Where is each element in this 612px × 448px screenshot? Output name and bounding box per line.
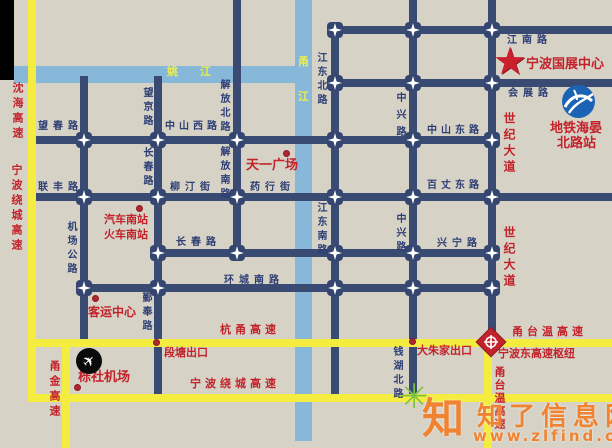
label-jiefang-north-rd: 解放北路 bbox=[218, 79, 228, 135]
label-zhongshan-east-rd: 中山东路 bbox=[427, 126, 483, 136]
intersection-star-icon bbox=[327, 189, 343, 205]
yao-river bbox=[14, 66, 312, 83]
road-zhongshan bbox=[32, 136, 496, 144]
label-metro-station-line1: 地铁海晏 bbox=[550, 122, 602, 135]
marker-dot-dazhujia-exit bbox=[409, 338, 416, 345]
label-wangchun-rd: 望春路 bbox=[38, 122, 83, 132]
yong-river-label-top: 甬 bbox=[298, 56, 309, 67]
label-zhongxing-rd-north: 中兴路 bbox=[394, 92, 404, 143]
intersection-star-icon bbox=[405, 22, 421, 38]
label-zhongshan-west-rd: 中山西路 bbox=[165, 122, 221, 132]
marker-dot-tianyi-square bbox=[283, 150, 290, 157]
label-wangjing-rd: 望京路 bbox=[141, 87, 151, 129]
label-shiji-avenue-north: 世纪大道 bbox=[503, 112, 515, 176]
black-edge bbox=[0, 0, 14, 80]
label-jiangdong-north-rd: 江东北路 bbox=[315, 52, 325, 108]
label-changchun-rd-h: 长春路 bbox=[176, 238, 221, 248]
label-dazhujia-exit: 大朱家出口 bbox=[417, 345, 472, 356]
intersection-star-icon bbox=[484, 132, 500, 148]
intersection-star-icon bbox=[150, 189, 166, 205]
intersection-star-icon bbox=[484, 22, 500, 38]
intersection-star-icon bbox=[327, 75, 343, 91]
intersection-star-icon bbox=[405, 132, 421, 148]
intersection-star-icon bbox=[405, 75, 421, 91]
label-changchun-rd-v: 长春路 bbox=[141, 147, 151, 189]
label-shiji-avenue-south: 世纪大道 bbox=[503, 226, 515, 290]
road-huancheng-south bbox=[80, 284, 496, 292]
label-south-train-station: 火车南站 bbox=[104, 229, 148, 240]
road-liuting-yaohang-baizhang bbox=[32, 193, 612, 201]
label-shenhai-expwy: 沈海高速 bbox=[12, 82, 23, 142]
label-zhongxing-rd-south: 中兴路 bbox=[394, 213, 404, 255]
intersection-star-icon bbox=[327, 245, 343, 261]
intersection-star-icon bbox=[484, 189, 500, 205]
yao-river-label: 姚江 bbox=[167, 66, 233, 77]
marker-dot-lishe-airport bbox=[74, 384, 81, 391]
intersection-star-icon bbox=[484, 280, 500, 296]
label-huizhan-rd: 会展路 bbox=[508, 89, 553, 99]
expwy-yongjin bbox=[62, 343, 70, 448]
label-south-bus-station: 汽车南站 bbox=[104, 214, 148, 225]
road-yinfeng bbox=[154, 76, 162, 396]
intersection-star-icon bbox=[229, 245, 245, 261]
intersection-star-icon bbox=[327, 22, 343, 38]
marker-dot-south-station bbox=[136, 205, 143, 212]
road-jichang-highway bbox=[80, 76, 88, 343]
label-metro-station-line2: 北路站 bbox=[557, 137, 596, 150]
intersection-star-icon bbox=[405, 245, 421, 261]
intersection-star-icon bbox=[76, 280, 92, 296]
intersection-star-icon bbox=[229, 132, 245, 148]
label-jiefang-south-rd: 解放南路 bbox=[218, 146, 228, 202]
road-jiefang bbox=[233, 0, 241, 257]
label-yaohang-st: 药行街 bbox=[250, 183, 295, 193]
label-raocheng-expwy-south: 宁波绕城高速 bbox=[190, 378, 280, 389]
intersection-star-icon bbox=[229, 189, 245, 205]
watermark-logo-char: 知 bbox=[422, 398, 464, 440]
road-jiangnan bbox=[331, 26, 612, 34]
label-passenger-center: 客运中心 bbox=[88, 306, 136, 318]
intersection-star-icon bbox=[327, 280, 343, 296]
label-huancheng-south-rd: 环城南路 bbox=[224, 276, 284, 286]
intersection-star-icon bbox=[405, 189, 421, 205]
label-expo-center: 宁波国展中心 bbox=[526, 58, 604, 71]
marker-dot-passenger-center bbox=[92, 295, 99, 302]
intersection-star-icon bbox=[150, 245, 166, 261]
intersection-star-icon bbox=[484, 245, 500, 261]
intersection-star-icon bbox=[405, 280, 421, 296]
intersection-star-icon bbox=[327, 132, 343, 148]
intersection-star-icon bbox=[150, 280, 166, 296]
label-jiangdong-south-rd: 江东南路 bbox=[315, 202, 325, 258]
expo-center-star-icon: ★ bbox=[493, 42, 527, 80]
label-baizhang-east-rd: 百丈东路 bbox=[427, 181, 483, 191]
expwy-hangyong bbox=[28, 339, 612, 347]
expwy-raocheng-south bbox=[28, 394, 612, 402]
intersection-star-icon bbox=[150, 132, 166, 148]
label-jichang-highway: 机场公路 bbox=[65, 221, 75, 277]
label-yongtaiwen-expwy-east: 甬台温高速 bbox=[512, 326, 587, 337]
label-yinfeng-rd: 鄞奉路 bbox=[140, 292, 150, 334]
intersection-star-icon bbox=[76, 132, 92, 148]
marker-dot-duantang-exit bbox=[153, 339, 160, 346]
label-hangyong-expwy: 杭甬高速 bbox=[220, 324, 280, 335]
yong-river-label-bottom: 江 bbox=[298, 91, 309, 102]
label-liuting-st: 柳汀街 bbox=[170, 183, 215, 193]
label-raocheng-expwy-west: 宁波绕城高速 bbox=[11, 164, 22, 254]
label-lianfeng-rd: 联丰路 bbox=[38, 183, 83, 193]
label-xingning-rd: 兴宁路 bbox=[437, 239, 482, 249]
ningbo-road-map: 姚江 甬 江 望春路 中山西路 联丰路 柳汀街 药行街 长春路 环城南路 中山东… bbox=[0, 0, 612, 448]
label-yongjin-expwy: 甬金高速 bbox=[49, 360, 60, 420]
label-duantang-exit: 段塘出口 bbox=[164, 347, 208, 358]
airport-plane-icon: ✈ bbox=[76, 348, 102, 374]
label-ningbo-east-hub: 宁波东高速枢纽 bbox=[498, 348, 575, 359]
label-tianyi-square: 天一广场 bbox=[246, 159, 298, 172]
watermark-site-url: www.zlfind.com bbox=[473, 429, 612, 444]
metro-logo-icon bbox=[562, 85, 595, 118]
